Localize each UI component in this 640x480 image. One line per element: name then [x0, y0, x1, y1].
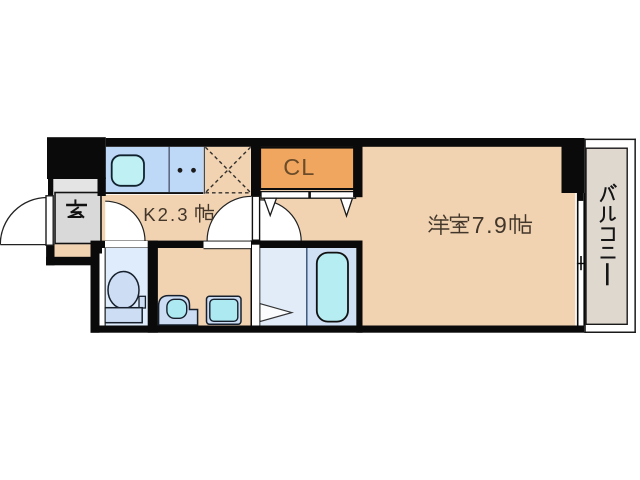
svg-text:7.9: 7.9 [472, 212, 508, 238]
svg-text:CL: CL [283, 154, 315, 180]
svg-text:K2.3: K2.3 [143, 204, 189, 225]
